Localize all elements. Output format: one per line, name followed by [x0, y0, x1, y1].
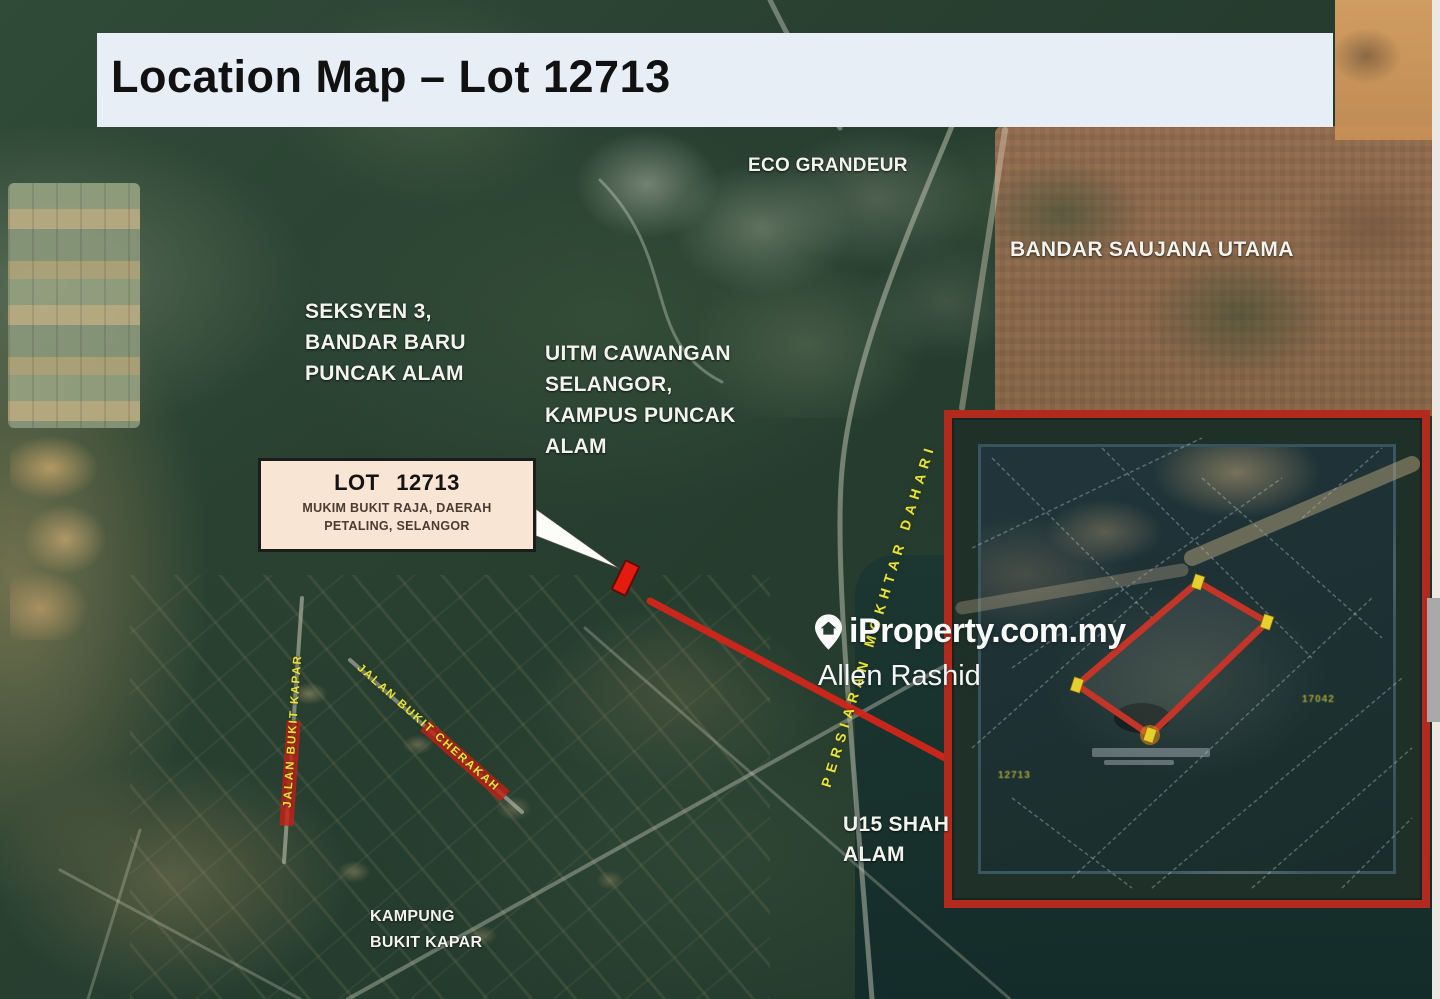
- iproperty-watermark: iProperty.com.my Allen Rashid: [815, 612, 1126, 693]
- place-label-uitm-kampus-puncak-alam: UITM CAWANGAN SELANGOR, KAMPUS PUNCAK AL…: [545, 338, 736, 462]
- place-label-bandar-saujana-utama: BANDAR SAUJANA UTAMA: [1010, 234, 1294, 265]
- callout-address-line: PETALING, SELANGOR: [261, 517, 533, 535]
- lot-callout-box: LOT 12713 MUKIM BUKIT RAJA, DAERAH PETAL…: [258, 458, 536, 552]
- label-line: KAMPUS PUNCAK: [545, 400, 736, 431]
- parcel-number-label: 12713: [998, 770, 1031, 781]
- label-line: ALAM: [843, 840, 949, 870]
- label-line: PUNCAK ALAM: [305, 358, 466, 389]
- right-edge-gray-block: [1427, 598, 1440, 722]
- place-label-eco-grandeur: ECO GRANDEUR: [748, 150, 908, 181]
- label-line: ALAM: [545, 431, 736, 462]
- label-line: SELANGOR,: [545, 369, 736, 400]
- label-line: SEKSYEN 3,: [305, 296, 466, 327]
- watermark-brand: iProperty.com.my: [849, 612, 1126, 651]
- label-line: UITM CAWANGAN: [545, 338, 736, 369]
- title-bar: Location Map – Lot 12713: [97, 33, 1333, 127]
- blurred-caption: [1092, 748, 1210, 765]
- callout-address-line: MUKIM BUKIT RAJA, DAERAH: [261, 499, 533, 517]
- location-map-screenshot: 12713 17042 PERSIARAN MOKHTAR DAHARI JAL…: [0, 0, 1440, 999]
- label-line: KAMPUNG: [370, 904, 482, 930]
- parcel-number-label: 17042: [1302, 694, 1335, 705]
- right-edge-strip: [1432, 0, 1440, 999]
- label-line: U15 SHAH: [843, 810, 949, 840]
- place-label-kampung-bukit-kapar: KAMPUNG BUKIT KAPAR: [370, 904, 482, 956]
- page-title: Location Map – Lot 12713: [111, 51, 671, 103]
- label-line: BANDAR BARU: [305, 327, 466, 358]
- label-line: BUKIT KAPAR: [370, 930, 482, 956]
- place-label-seksyen3-puncak-alam: SEKSYEN 3, BANDAR BARU PUNCAK ALAM: [305, 296, 466, 389]
- cleared-roads: [962, 464, 1412, 608]
- location-pin-icon: [815, 614, 842, 650]
- place-label-u15-shah-alam: U15 SHAH ALAM: [843, 810, 949, 870]
- watermark-agent-name: Allen Rashid: [818, 660, 1126, 693]
- callout-lot-number: LOT 12713: [261, 470, 533, 496]
